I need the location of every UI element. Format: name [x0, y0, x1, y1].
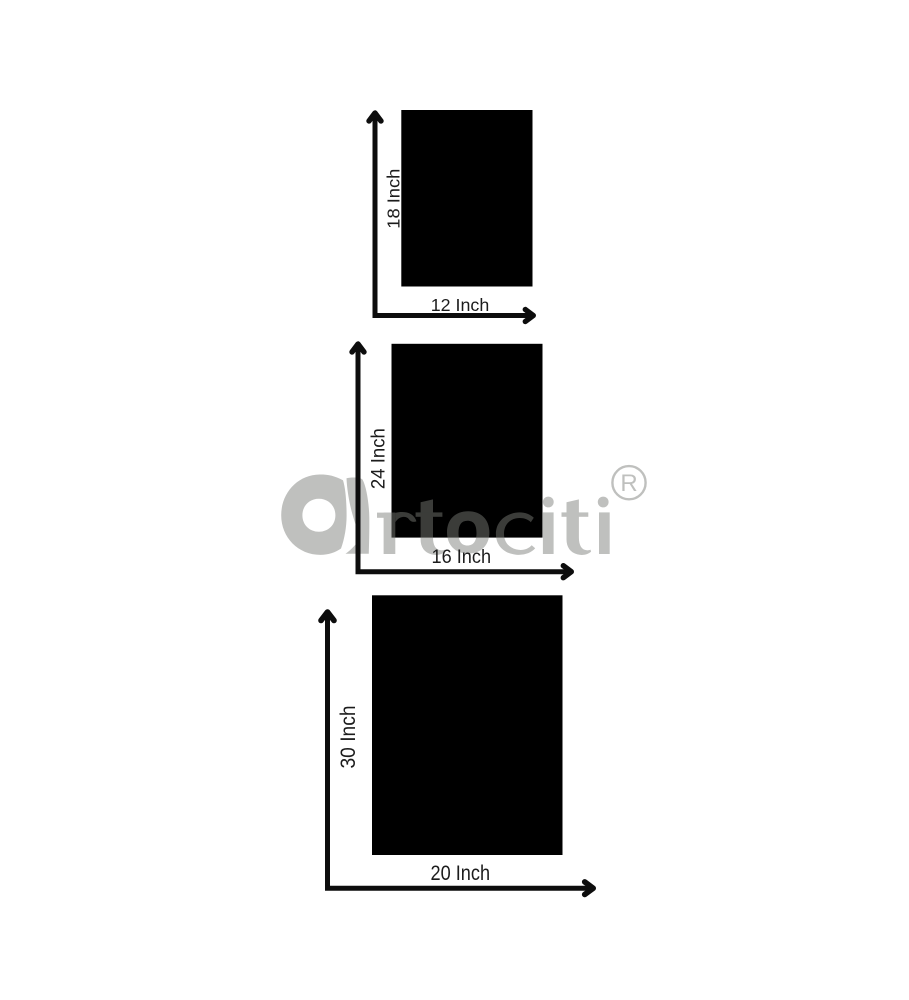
svg-text:12 Inch: 12 Inch: [431, 295, 490, 315]
svg-text:20 Inch: 20 Inch: [431, 862, 491, 885]
svg-text:16 Inch: 16 Inch: [432, 547, 492, 568]
svg-text:30 Inch: 30 Inch: [337, 706, 360, 769]
svg-text:24 Inch: 24 Inch: [369, 428, 390, 489]
svg-text:18 Inch: 18 Inch: [384, 169, 404, 229]
svg-text:R: R: [620, 470, 637, 497]
